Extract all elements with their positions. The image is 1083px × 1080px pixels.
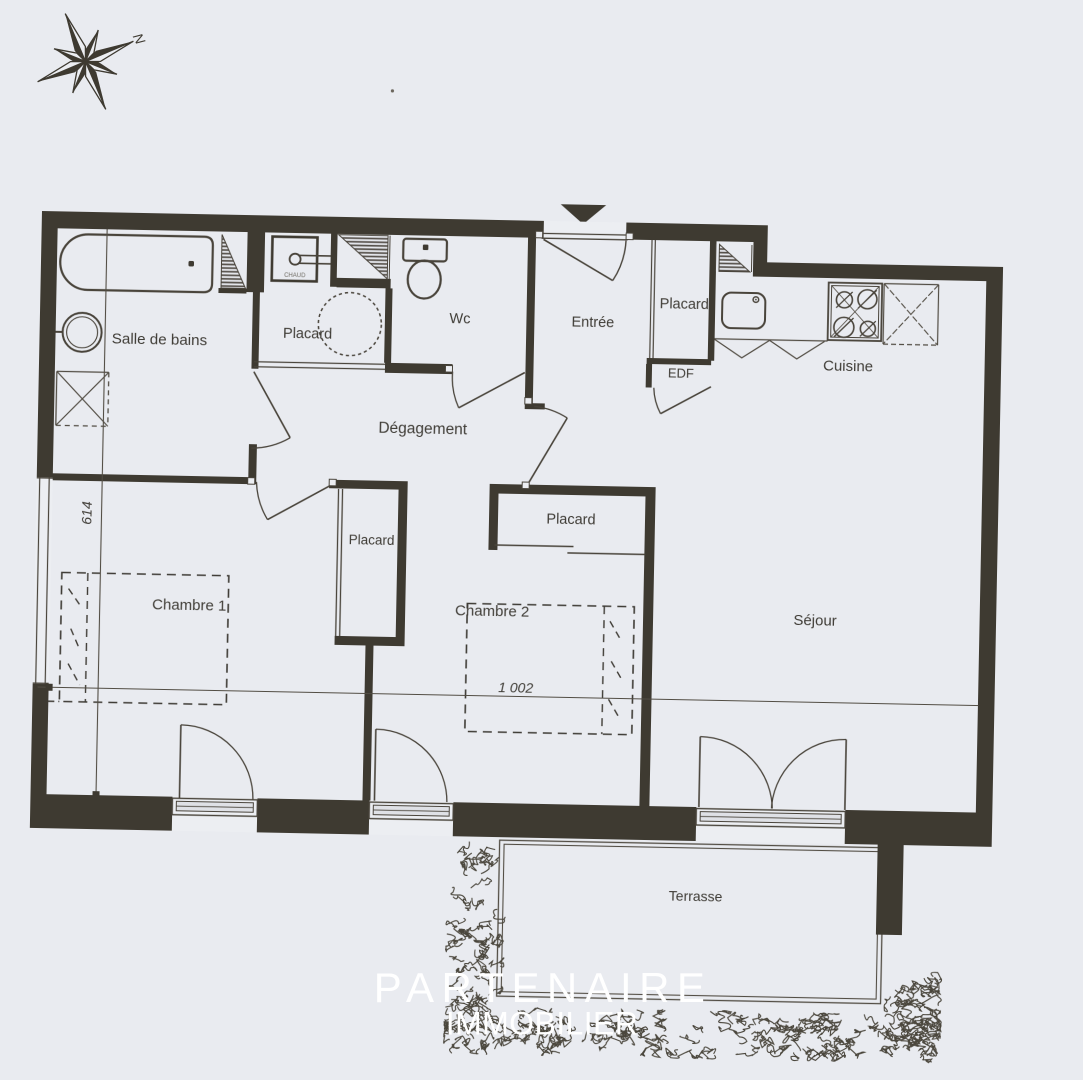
svg-text:Placard: Placard [349,532,395,548]
svg-text:Salle de bains: Salle de bains [112,330,208,349]
svg-text:EDF: EDF [668,365,694,381]
svg-text:Placard: Placard [546,512,595,529]
svg-text:Wc: Wc [449,311,470,327]
svg-text:Cuisine: Cuisine [823,357,873,375]
svg-text:Placard: Placard [283,326,332,343]
svg-text:IMMOBILIER: IMMOBILIER [446,1006,638,1042]
svg-text:Placard: Placard [660,296,709,313]
svg-text:Chambre 2: Chambre 2 [455,602,530,620]
svg-text:Entrée: Entrée [571,314,614,331]
svg-text:614: 614 [78,501,94,525]
svg-text:PARTENAIRE: PARTENAIRE [374,964,713,1011]
svg-text:Dégagement: Dégagement [378,420,468,439]
svg-text:Chambre 1: Chambre 1 [152,596,227,614]
svg-text:Terrasse: Terrasse [669,887,723,904]
svg-text:1 002: 1 002 [498,679,534,696]
svg-text:Séjour: Séjour [793,612,837,630]
svg-text:CHAUD: CHAUD [284,273,306,279]
